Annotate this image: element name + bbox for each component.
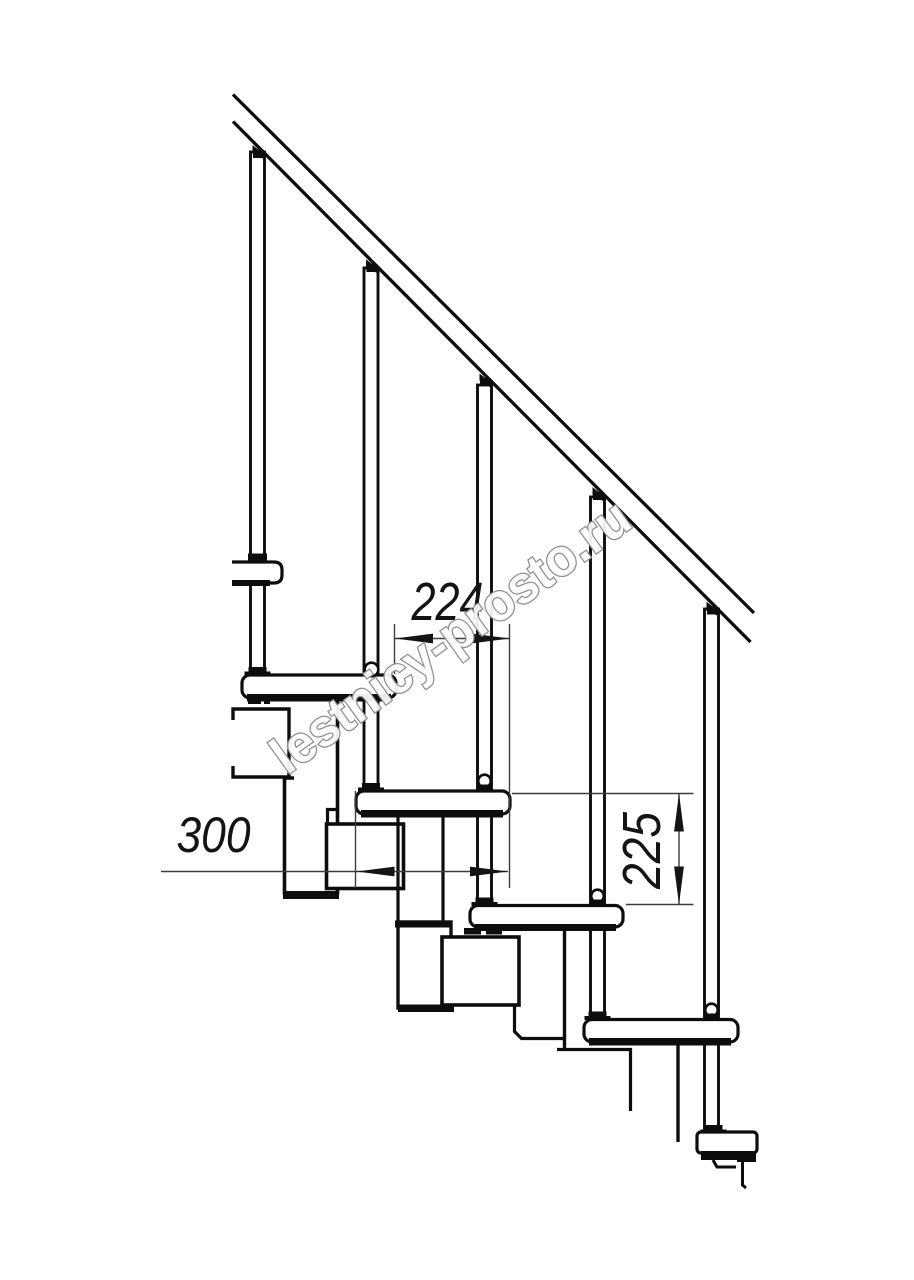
svg-text:225: 225 bbox=[613, 812, 672, 890]
svg-text:300: 300 bbox=[177, 806, 251, 863]
